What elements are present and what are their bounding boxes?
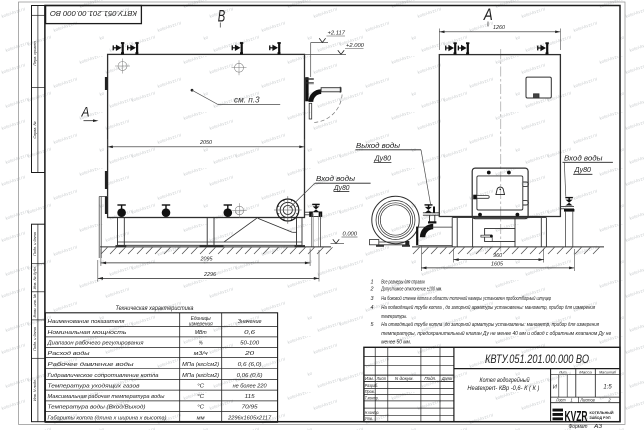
svg-text:Гидравлическое сопротивление к: Гидравлическое сопротивление котла xyxy=(48,373,159,379)
svg-text:20: 20 xyxy=(244,351,256,357)
svg-text:Ду80: Ду80 xyxy=(574,165,591,174)
svg-text:Номинальная мощность: Номинальная мощность xyxy=(48,330,127,336)
svg-text:Рабочее давление воды: Рабочее давление воды xyxy=(48,362,134,368)
svg-text:°С: °С xyxy=(197,394,204,400)
svg-text:+2.117: +2.117 xyxy=(328,31,346,37)
svg-text:Котел водогрейный: Котел водогрейный xyxy=(480,377,531,384)
svg-text:Листов: Листов xyxy=(579,398,595,403)
svg-text:1: 1 xyxy=(570,398,572,403)
svg-text:Допустимое отклонение ±100 мм: Допустимое отклонение ±100 мм. xyxy=(381,287,443,293)
svg-text:не более 220: не более 220 xyxy=(233,383,268,389)
svg-text:Т.контр.: Т.контр. xyxy=(365,395,379,400)
svg-text:Масса: Масса xyxy=(579,369,592,374)
svg-text:2296: 2296 xyxy=(203,272,216,278)
svg-text:МПа (кгс/см2): МПа (кгс/см2) xyxy=(182,373,219,379)
svg-text:%: % xyxy=(199,341,203,347)
svg-text:1260: 1260 xyxy=(493,25,505,31)
svg-text:мм: мм xyxy=(197,416,205,422)
svg-text:0.000: 0.000 xyxy=(343,232,358,238)
svg-text:+2.000: +2.000 xyxy=(346,43,365,49)
svg-text:0,6: 0,6 xyxy=(244,330,256,336)
svg-text:3: 3 xyxy=(371,296,374,302)
svg-text:Наименование показателя: Наименование показателя xyxy=(48,319,125,325)
svg-text:Пров.: Пров. xyxy=(365,389,375,394)
svg-text:Утв.: Утв. xyxy=(365,416,373,421)
svg-text:Перв. примен.: Перв. примен. xyxy=(33,40,37,65)
svg-text:измерения: измерения xyxy=(189,322,213,328)
svg-text:Лист: Лист xyxy=(376,376,387,381)
svg-text:Подп. и дата: Подп. и дата xyxy=(33,232,37,256)
svg-text:4: 4 xyxy=(371,305,374,311)
svg-text:KVZR: KVZR xyxy=(565,408,588,425)
svg-text:А: А xyxy=(483,5,493,24)
svg-text:КВТУ.051.201.00.000 ВО: КВТУ.051.201.00.000 ВО xyxy=(50,9,137,18)
svg-text:Лист: Лист xyxy=(555,398,566,403)
svg-text:Лит.: Лит. xyxy=(558,369,567,374)
svg-text:Габариты котла (длина х ширина: Габариты котла (длина х ширина х высота) xyxy=(48,416,167,422)
svg-text:Разраб.: Разраб. xyxy=(365,383,379,388)
svg-text:Инв. N подл.: Инв. N подл. xyxy=(33,379,37,401)
svg-text:Дата: Дата xyxy=(441,376,452,381)
svg-text:Масштаб: Масштаб xyxy=(599,369,617,374)
svg-text:В: В xyxy=(218,7,226,26)
svg-text:Все размеры для справок: Все размеры для справок xyxy=(381,280,425,286)
svg-text:На отводящей трубе котла ,до з: На отводящей трубе котла ,до запорной ар… xyxy=(381,321,599,328)
svg-text:50-100: 50-100 xyxy=(240,341,260,347)
svg-text:Справ. №: Справ. № xyxy=(33,121,37,138)
svg-text:70/95: 70/95 xyxy=(242,405,259,411)
svg-text:1605: 1605 xyxy=(491,262,504,268)
svg-text:Диапазон рабочего регулировани: Диапазон рабочего регулирования xyxy=(46,341,143,347)
svg-text:КВТУ.051.201.00.000 ВО: КВТУ.051.201.00.000 ВО xyxy=(485,352,589,366)
svg-text:Подп.: Подп. xyxy=(424,376,436,381)
svg-text:Выход воды: Выход воды xyxy=(356,141,401,150)
svg-text:2296х1605х2117: 2296х1605х2117 xyxy=(227,416,272,422)
svg-text:А: А xyxy=(81,104,90,120)
svg-text:2050: 2050 xyxy=(199,140,212,146)
svg-text:Ду80: Ду80 xyxy=(374,154,391,163)
svg-text:Взам. инв. №: Взам. инв. № xyxy=(33,294,37,317)
svg-text:Максимальная рабочая температу: Максимальная рабочая температура воды xyxy=(48,394,165,400)
svg-text:Техническая характеристика: Техническая характеристика xyxy=(116,305,194,312)
svg-text:N докум.: N докум. xyxy=(395,376,414,381)
svg-text:°С: °С xyxy=(197,405,204,411)
svg-text:Ду80: Ду80 xyxy=(333,183,349,192)
svg-text:Значение: Значение xyxy=(238,319,262,325)
svg-text:0,6 (6,0): 0,6 (6,0) xyxy=(238,362,262,368)
svg-text:115: 115 xyxy=(245,394,256,400)
svg-text:°С: °С xyxy=(197,383,204,389)
svg-text:А3: А3 xyxy=(593,424,603,430)
svg-text:Вход воды: Вход воды xyxy=(564,154,603,163)
svg-text:Вход воды: Вход воды xyxy=(316,174,356,183)
svg-text:Температура уходящих газов: Температура уходящих газов xyxy=(48,383,140,389)
svg-text:2: 2 xyxy=(370,287,374,293)
svg-text:м3/ч: м3/ч xyxy=(194,351,208,357)
svg-text:ЗАВОД РЭП: ЗАВОД РЭП xyxy=(590,415,611,420)
svg-text:1:5: 1:5 xyxy=(603,385,612,391)
svg-text:Инв. № дубл.: Инв. № дубл. xyxy=(33,266,37,289)
svg-text:На боковой стенке котла в обла: На боковой стенке котла в области топочн… xyxy=(381,295,551,302)
svg-text:Температура воды (Вход/Выход): Температура воды (Вход/Выход) xyxy=(48,405,146,411)
svg-text:Изм.: Изм. xyxy=(365,376,374,381)
svg-text:МВт: МВт xyxy=(195,330,208,336)
svg-text:температуры.: температуры. xyxy=(381,314,407,320)
svg-text:Формат: Формат xyxy=(569,424,588,430)
svg-text:Расход воды: Расход воды xyxy=(48,351,90,357)
svg-text:Подп. и дата: Подп. и дата xyxy=(33,327,37,351)
svg-text:0,06 (0,6): 0,06 (0,6) xyxy=(237,373,263,379)
svg-text:менее 50 мм.: менее 50 мм. xyxy=(381,339,411,345)
svg-text:1: 1 xyxy=(371,280,374,286)
svg-text:2095: 2095 xyxy=(200,256,214,262)
svg-text:МПа (кгс/см2): МПа (кгс/см2) xyxy=(182,362,219,368)
svg-text:960: 960 xyxy=(493,253,502,259)
svg-text:На подводящей трубе котла , д: На подводящей трубе котла , до запорной … xyxy=(381,304,595,311)
svg-text:Heatexpert- КВр -0,6- К ( К ): Heatexpert- КВр -0,6- К ( К ) xyxy=(467,386,539,392)
svg-text:температуры, предохранительный: температуры, предохранительный клапан Ду… xyxy=(381,330,611,337)
svg-text:см. п.3: см. п.3 xyxy=(234,96,260,105)
svg-text:Н.контр.: Н.контр. xyxy=(365,410,380,415)
